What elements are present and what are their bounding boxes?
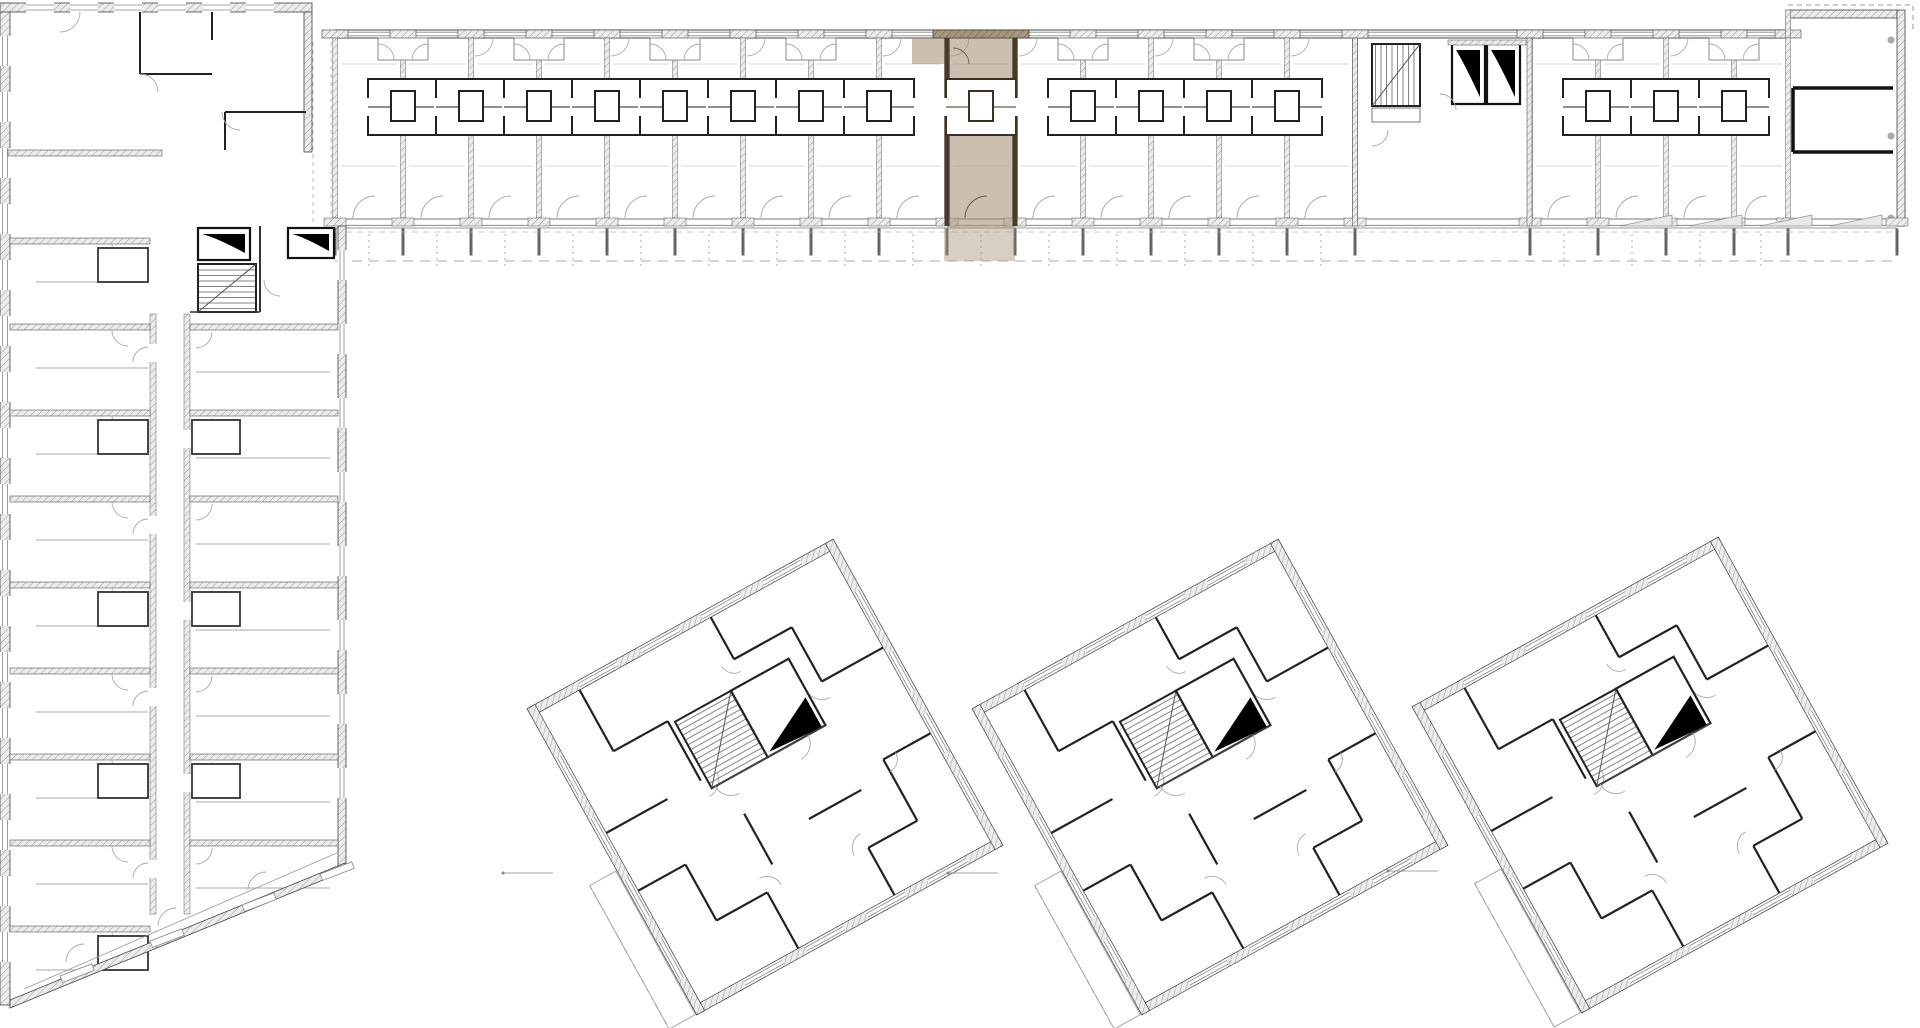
tower-leader-line bbox=[502, 872, 554, 875]
left-wing-building bbox=[0, 3, 354, 1009]
bar-stair-elevator-core bbox=[1353, 38, 1533, 226]
junction-stair-icon bbox=[198, 264, 256, 312]
floor-plan-drawing bbox=[0, 0, 1920, 1028]
floor-plan-canvas bbox=[0, 0, 1920, 1028]
bar-elevator-icon bbox=[1452, 44, 1485, 104]
top-bar-building bbox=[313, 5, 1913, 266]
tower-2 bbox=[945, 539, 1448, 1028]
tower-1 bbox=[500, 539, 1003, 1028]
bar-elevator-icon bbox=[1487, 44, 1520, 104]
junction-elevator-icon bbox=[198, 228, 250, 260]
junction-elevator-icon bbox=[288, 228, 334, 258]
tower-core bbox=[1120, 659, 1279, 804]
junction-stair-elevator-core bbox=[190, 226, 334, 312]
tower-3 bbox=[1385, 537, 1888, 1028]
highlighted-unit[interactable] bbox=[912, 30, 1029, 261]
bar-stair-icon bbox=[1372, 44, 1420, 106]
tower-core bbox=[1560, 657, 1719, 802]
tower-core bbox=[675, 659, 834, 804]
